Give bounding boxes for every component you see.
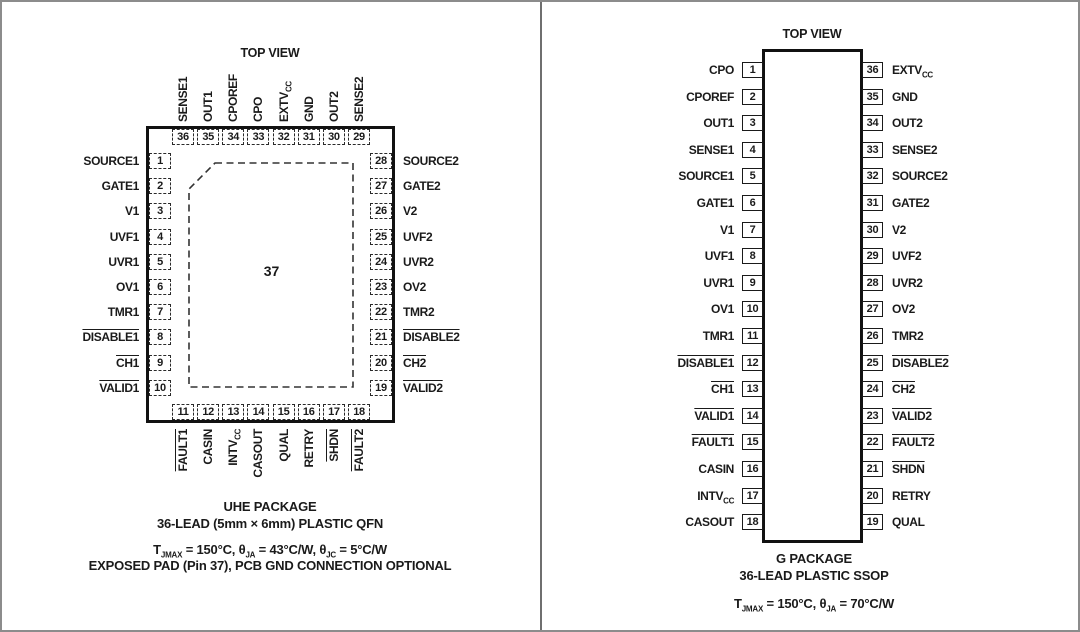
qfn-pin-27-label: GATE2 xyxy=(403,178,537,194)
qfn-pin-8-pad: 8 xyxy=(149,329,171,345)
ssop-pin-29-box: 29 xyxy=(862,248,883,264)
ssop-pin-10-box: 10 xyxy=(742,301,763,317)
qfn-pin-28-label: SOURCE2 xyxy=(403,153,537,169)
qfn-pin-21-label: DISABLE2 xyxy=(403,329,537,345)
qfn-pin-8-label: DISABLE1 xyxy=(7,329,139,345)
qfn-pin-19-pad: 19 xyxy=(370,380,392,396)
ssop-pin-26-box: 26 xyxy=(862,328,883,344)
qfn-pin-14-label: CASOUT xyxy=(250,429,266,499)
ssop-pin-27-box: 27 xyxy=(862,301,883,317)
ssop-pin-21-box: 21 xyxy=(862,461,883,477)
qfn-pin-3-pad: 3 xyxy=(149,203,171,219)
ssop-pin-30-label: V2 xyxy=(892,222,1072,238)
ssop-pin-16-label: CASIN xyxy=(554,461,734,477)
qfn-pin-5-label: UVR1 xyxy=(7,254,139,270)
qfn-pin-16-pad: 16 xyxy=(298,404,320,420)
ssop-pin-25-label: DISABLE2 xyxy=(892,355,1072,371)
ssop-pin-29-label: UVF2 xyxy=(892,248,1072,264)
qfn-pin-15-label: QUAL xyxy=(276,429,292,499)
ssop-pin-33-label: SENSE2 xyxy=(892,142,1072,158)
ssop-pin-2-box: 2 xyxy=(742,89,763,105)
ssop-pin-9-label: UVR1 xyxy=(554,275,734,291)
ssop-pin-3-box: 3 xyxy=(742,115,763,131)
ssop-pin-24-label: CH2 xyxy=(892,381,1072,397)
qfn-pin-6-pad: 6 xyxy=(149,279,171,295)
ssop-pin-6-box: 6 xyxy=(742,195,763,211)
ssop-pin-18-label: CASOUT xyxy=(554,514,734,530)
ssop-pin-19-label: QUAL xyxy=(892,514,1072,530)
ssop-pin-7-box: 7 xyxy=(742,222,763,238)
qfn-pin-18-pad: 18 xyxy=(348,404,370,420)
ssop-pin-36-box: 36 xyxy=(862,62,883,78)
qfn-exposed-pad-number: 37 xyxy=(188,263,355,279)
ssop-pin-35-box: 35 xyxy=(862,89,883,105)
qfn-top-view-label: TOP VIEW xyxy=(200,46,340,60)
ssop-pin-8-box: 8 xyxy=(742,248,763,264)
ssop-top-view-label: TOP VIEW xyxy=(742,27,882,41)
qfn-pin-29-pad: 29 xyxy=(348,129,370,145)
qfn-pin-27-pad: 27 xyxy=(370,178,392,194)
ssop-pin-14-box: 14 xyxy=(742,408,763,424)
ssop-pin-36-label: EXTVCC xyxy=(892,62,1072,78)
qfn-pin-36-pad: 36 xyxy=(172,129,194,145)
ssop-pin-27-label: OV2 xyxy=(892,301,1072,317)
ssop-pin-25-box: 25 xyxy=(862,355,883,371)
ssop-pin-33-box: 33 xyxy=(862,142,883,158)
ssop-pin-23-box: 23 xyxy=(862,408,883,424)
qfn-pin-2-pad: 2 xyxy=(149,178,171,194)
pin-configuration-figure: TOP VIEW 37 36SENSE135OUT134CPOREF33CPO3… xyxy=(0,0,1080,632)
ssop-pin-26-label: TMR2 xyxy=(892,328,1072,344)
qfn-pin-3-label: V1 xyxy=(7,203,139,219)
qfn-pin-25-pad: 25 xyxy=(370,229,392,245)
ssop-pin-31-box: 31 xyxy=(862,195,883,211)
qfn-pin-17-label: SHDN xyxy=(326,429,342,499)
qfn-pin-32-label: EXTVCC xyxy=(276,60,292,122)
qfn-pin-12-label: CASIN xyxy=(200,429,216,499)
qfn-pin-9-pad: 9 xyxy=(149,355,171,371)
qfn-pin-22-label: TMR2 xyxy=(403,304,537,320)
ssop-pin-32-label: SOURCE2 xyxy=(892,168,1072,184)
ssop-pin-18-box: 18 xyxy=(742,514,763,530)
ssop-pin-7-label: V1 xyxy=(554,222,734,238)
qfn-pin-20-pad: 20 xyxy=(370,355,392,371)
qfn-pin-13-label: INTVCC xyxy=(225,429,241,499)
qfn-pin-23-label: OV2 xyxy=(403,279,537,295)
qfn-pin-35-pad: 35 xyxy=(197,129,219,145)
ssop-pin-12-box: 12 xyxy=(742,355,763,371)
ssop-package-outline xyxy=(762,49,863,543)
qfn-pin-31-label: GND xyxy=(301,60,317,122)
qfn-pin-33-pad: 33 xyxy=(247,129,269,145)
qfn-pin-24-label: UVR2 xyxy=(403,254,537,270)
qfn-pin-35-label: OUT1 xyxy=(200,60,216,122)
ssop-pin-5-label: SOURCE1 xyxy=(554,168,734,184)
qfn-pin-26-pad: 26 xyxy=(370,203,392,219)
ssop-pin-4-label: SENSE1 xyxy=(554,142,734,158)
ssop-pin-34-label: OUT2 xyxy=(892,115,1072,131)
ssop-pin-31-label: GATE2 xyxy=(892,195,1072,211)
qfn-pin-13-pad: 13 xyxy=(222,404,244,420)
qfn-pin-14-pad: 14 xyxy=(247,404,269,420)
ssop-pin-30-box: 30 xyxy=(862,222,883,238)
qfn-pin-11-pad: 11 xyxy=(172,404,194,420)
qfn-pin-7-pad: 7 xyxy=(149,304,171,320)
ssop-thermal-data: TJMAX = 150°C, θJA = 70°C/W xyxy=(624,596,1004,612)
ssop-pin-13-label: CH1 xyxy=(554,381,734,397)
qfn-pin-30-label: OUT2 xyxy=(326,60,342,122)
qfn-pin-29-label: SENSE2 xyxy=(351,60,367,122)
ssop-pin-2-label: CPOREF xyxy=(554,89,734,105)
qfn-pin-17-pad: 17 xyxy=(323,404,345,420)
ssop-pin-1-box: 1 xyxy=(742,62,763,78)
ssop-pin-9-box: 9 xyxy=(742,275,763,291)
ssop-pin-4-box: 4 xyxy=(742,142,763,158)
ssop-pin-16-box: 16 xyxy=(742,461,763,477)
ssop-pin-22-label: FAULT2 xyxy=(892,434,1072,450)
ssop-pin-13-box: 13 xyxy=(742,381,763,397)
ssop-pin-15-box: 15 xyxy=(742,434,763,450)
panel-divider xyxy=(540,2,542,632)
qfn-pin-22-pad: 22 xyxy=(370,304,392,320)
ssop-pin-21-label: SHDN xyxy=(892,461,1072,477)
ssop-pin-35-label: GND xyxy=(892,89,1072,105)
qfn-pin-20-label: CH2 xyxy=(403,355,537,371)
ssop-pin-24-box: 24 xyxy=(862,381,883,397)
ssop-pin-17-label: INTVCC xyxy=(554,488,734,504)
qfn-pin-4-label: UVF1 xyxy=(7,229,139,245)
ssop-pin-15-label: FAULT1 xyxy=(554,434,734,450)
qfn-package-name: UHE PACKAGE xyxy=(50,499,490,515)
ssop-pin-1-label: CPO xyxy=(554,62,734,78)
ssop-pin-3-label: OUT1 xyxy=(554,115,734,131)
qfn-pin-28-pad: 28 xyxy=(370,153,392,169)
ssop-pin-12-label: DISABLE1 xyxy=(554,355,734,371)
qfn-pin-11-label: FAULT1 xyxy=(175,429,191,499)
qfn-pin-21-pad: 21 xyxy=(370,329,392,345)
qfn-pin-9-label: CH1 xyxy=(7,355,139,371)
ssop-pin-6-label: GATE1 xyxy=(554,195,734,211)
ssop-pin-32-box: 32 xyxy=(862,168,883,184)
ssop-pin-28-label: UVR2 xyxy=(892,275,1072,291)
qfn-pin-34-label: CPOREF xyxy=(225,60,241,122)
ssop-pin-14-label: VALID1 xyxy=(554,408,734,424)
ssop-package-description: 36-LEAD PLASTIC SSOP xyxy=(624,568,1004,584)
qfn-pin-7-label: TMR1 xyxy=(7,304,139,320)
qfn-pin-23-pad: 23 xyxy=(370,279,392,295)
ssop-pin-20-label: RETRY xyxy=(892,488,1072,504)
ssop-pin-11-label: TMR1 xyxy=(554,328,734,344)
ssop-pin-19-box: 19 xyxy=(862,514,883,530)
qfn-package-description: 36-LEAD (5mm × 6mm) PLASTIC QFN xyxy=(50,516,490,532)
ssop-pin-10-label: OV1 xyxy=(554,301,734,317)
qfn-pin-1-label: SOURCE1 xyxy=(7,153,139,169)
ssop-pin-5-box: 5 xyxy=(742,168,763,184)
ssop-pin-28-box: 28 xyxy=(862,275,883,291)
ssop-pin-23-label: VALID2 xyxy=(892,408,1072,424)
qfn-pin-26-label: V2 xyxy=(403,203,537,219)
ssop-pin-17-box: 17 xyxy=(742,488,763,504)
qfn-pin-33-label: CPO xyxy=(250,60,266,122)
qfn-pin-36-label: SENSE1 xyxy=(175,60,191,122)
qfn-pin-34-pad: 34 xyxy=(222,129,244,145)
ssop-pin-22-box: 22 xyxy=(862,434,883,450)
ssop-pin-20-box: 20 xyxy=(862,488,883,504)
qfn-pin-10-label: VALID1 xyxy=(7,380,139,396)
ssop-pin-11-box: 11 xyxy=(742,328,763,344)
ssop-package-name: G PACKAGE xyxy=(624,551,1004,567)
qfn-pin-5-pad: 5 xyxy=(149,254,171,270)
qfn-pin-15-pad: 15 xyxy=(273,404,295,420)
qfn-pin-1-pad: 1 xyxy=(149,153,171,169)
qfn-pin-6-label: OV1 xyxy=(7,279,139,295)
ssop-pin-34-box: 34 xyxy=(862,115,883,131)
qfn-thermal-data: TJMAX = 150°C, θJA = 43°C/W, θJC = 5°C/W xyxy=(50,542,490,558)
qfn-pin-31-pad: 31 xyxy=(298,129,320,145)
qfn-exposed-pad-note: EXPOSED PAD (Pin 37), PCB GND CONNECTION… xyxy=(50,558,490,574)
qfn-pin-16-label: RETRY xyxy=(301,429,317,499)
qfn-pin-19-label: VALID2 xyxy=(403,380,537,396)
ssop-pin-8-label: UVF1 xyxy=(554,248,734,264)
qfn-pin-12-pad: 12 xyxy=(197,404,219,420)
qfn-pin-30-pad: 30 xyxy=(323,129,345,145)
qfn-pin-10-pad: 10 xyxy=(149,380,171,396)
qfn-pin-4-pad: 4 xyxy=(149,229,171,245)
qfn-pin-32-pad: 32 xyxy=(273,129,295,145)
qfn-pin-24-pad: 24 xyxy=(370,254,392,270)
qfn-pin-18-label: FAULT2 xyxy=(351,429,367,499)
qfn-pin-2-label: GATE1 xyxy=(7,178,139,194)
qfn-pin-25-label: UVF2 xyxy=(403,229,537,245)
